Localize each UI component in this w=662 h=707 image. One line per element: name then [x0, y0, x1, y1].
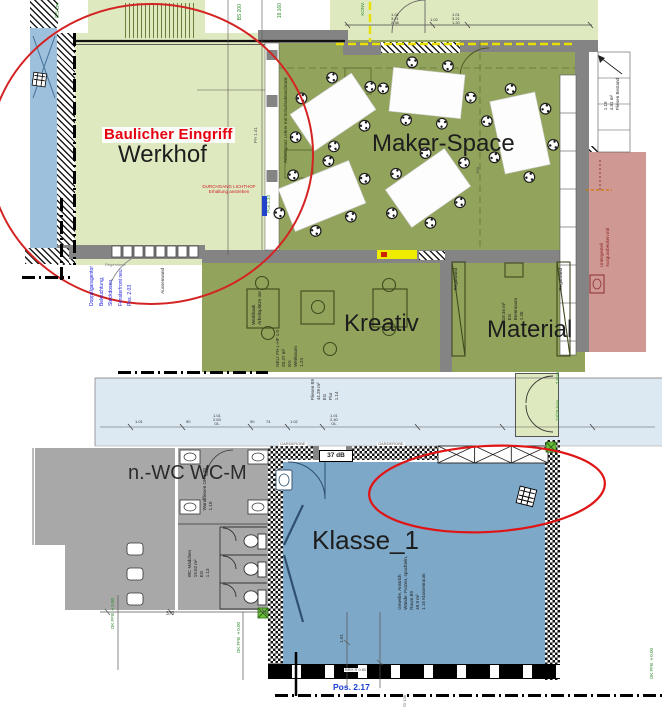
top-dims-b: 1.02 [430, 18, 438, 22]
wc-info2: Wandfliesen OK 1.20 1.10 [203, 468, 214, 510]
dim-370: 370 [166, 612, 174, 617]
pink-note: Untergestell Ausgussbecken mit [600, 228, 611, 267]
label-37db: 37 dB [319, 450, 353, 462]
label-garderobe-2: GARDEROBE [377, 442, 405, 446]
axis-line-bottom-left [22, 276, 70, 279]
annotation-durchgang: DURCHGANG LICHTHOF Erhaltung anstreben [198, 185, 260, 194]
note-aussenwand: Aussenwand [161, 268, 166, 294]
wall-maker-top-right [460, 40, 598, 52]
note-regalwand-left: Regalwand [454, 268, 459, 291]
top-dims-c: 1.01 3.21 1.20 [452, 13, 460, 26]
wc-info: WC Mädchen 19.02 m² EG 1.13 [188, 550, 211, 577]
top-dims-a: 1.01 3.21 2.38 [391, 13, 399, 26]
wall-maker-top-left [258, 30, 348, 43]
ramp-hatching [125, 3, 195, 38]
wc-info-0: 1.13 [206, 550, 211, 577]
blue-note-4: Beleuchtung, [100, 266, 106, 306]
wall-mid-hatch [419, 251, 445, 260]
flur-dim-stack2: 1.01 2.40 OL [330, 414, 338, 427]
room-label-material: Material [487, 317, 572, 342]
axis-line-bottom [275, 694, 662, 697]
room-label-klasse1: Klasse_1 [312, 527, 419, 554]
note-konv: KONV. [361, 2, 366, 16]
pink-note-1: Ausgussbecken mit [606, 228, 611, 267]
flur-dim-1: 90 [186, 420, 190, 424]
dim-300: 300 [476, 167, 480, 174]
kreativ-info-0: 1.24 [300, 330, 305, 367]
note-regalwand-right: Regalwand [559, 268, 564, 291]
dim-181: 1.81 [340, 634, 345, 643]
wall-hatch-corner [30, 0, 58, 28]
klasse-info-0: 1.15 Klassenraum [422, 556, 427, 610]
werkbank-note-1: Arbeitsplätze 4er [258, 291, 263, 325]
label-garderobe-1: GARDEROBE [279, 442, 307, 446]
flur-info-0: 1.14 [335, 379, 340, 400]
green-level-note-1: OK FFB ±0.00 [111, 598, 116, 629]
area-pink [584, 152, 646, 352]
blue-note-3: Steckdosen, [109, 266, 115, 306]
note-td136: TD 136 [403, 695, 407, 707]
blue-notes: Doppelgaragentor Beleuchtung, Steckdosen… [90, 266, 134, 306]
flur-info: Fliesen B9 44.28 m² EG Flur 1.14 [311, 379, 340, 400]
corridor-floor: Fliesen Bestand [616, 78, 621, 110]
note-pos233: Pos 2.33 [267, 195, 272, 213]
wall-klasse-right [545, 440, 560, 680]
green-level-note-2: OK FFB ±0.00 [237, 622, 242, 653]
area-green-room-br [515, 373, 559, 437]
note-pos217: Pos. 2.17 [333, 683, 370, 692]
flur-dim-stack1: 1.01 2.63 OL [213, 414, 221, 427]
note-brh: BRH R 0.80 [344, 668, 367, 672]
wall-maker-step [343, 42, 381, 55]
blue-note-5: Doppelgaragentor [90, 266, 96, 306]
axis-line-flur-top [118, 371, 268, 374]
blue-note-2: Fensterfront neu [119, 266, 125, 306]
kreativ-info: NEU: FH L-HF 1.0 83.37 m² EG Werkraum 1.… [276, 330, 305, 367]
blue-note-1: Pos. 2.03 [128, 266, 134, 306]
corridor-info: 1.19 4.81 m² Fliesen Bestand [604, 78, 621, 110]
werkbank-note: Werkbank Arbeitsplätze 4er [252, 291, 263, 325]
klasse-info: Gewebe, Anstrich Wände: Putzen, spachtel… [398, 556, 427, 610]
wall-corridor-left [575, 52, 589, 352]
wall-kreativ-material [440, 262, 452, 372]
room-label-wc-left: n.-WC [128, 463, 185, 484]
klasse-info-1: 49.9 m² [416, 556, 421, 610]
flur-info-1: Flur [329, 379, 334, 400]
room-label-kreativ: Kreativ [344, 311, 419, 336]
flur-dim-6: 74 [266, 420, 270, 424]
axis-line-left-lower [60, 198, 63, 282]
area-wc-left-lower [65, 545, 175, 610]
wall-klasse-left [268, 446, 283, 678]
floorplan-canvas: Baulicher Eingriff Werkhof Maker-Space K… [0, 0, 662, 707]
wall-maker-top-hatch [381, 42, 460, 53]
area-pale-top-strip [330, 0, 598, 45]
material-info: 18.46 m² EG Brennraum 1.26 [502, 298, 525, 320]
green-level-note-3: OK FFB ±0.00 [650, 648, 655, 679]
note-teacher-desk: Arbeitsplatz Lehrer mit Schubladenschran… [284, 48, 289, 163]
dim-ph141: PH 1.41 [254, 127, 259, 143]
room-label-maker-space: Maker-Space [372, 131, 515, 156]
dim-ramp: 8.5 cm [56, 3, 61, 18]
flur-dim-7: 1.02 [290, 420, 298, 424]
room-label-wc-m: WC-M [190, 463, 247, 484]
wall-klasse-bottom [268, 664, 560, 679]
window-strip-blue [30, 28, 57, 260]
x-brace-cabinets [438, 446, 548, 463]
durchgang-line2: Erhaltung anstreben [198, 190, 260, 195]
area-flur [95, 378, 662, 446]
flur-dim-4: OL [213, 422, 221, 426]
flur-dim-0: 1.01 [135, 420, 143, 424]
room-label-werkhof: Werkhof [118, 142, 207, 167]
wall-klasse-top-b [352, 446, 438, 460]
dim-bs200: BS 200 [238, 4, 243, 20]
kreativ-info-1: Werkraum [294, 330, 299, 367]
axis-line-left [73, 33, 76, 265]
top-dims-c2: 1.20 [452, 21, 460, 25]
wc-info2-0: 1.10 [209, 468, 214, 510]
yellow-highlight-wall [377, 250, 417, 259]
flur-dim-5: 90 [250, 420, 254, 424]
top-dims-a2: 2.38 [391, 21, 399, 25]
flur-dim-10: OL [330, 422, 338, 426]
material-info-0: 1.26 [520, 298, 525, 320]
green-dim-a: 7.5cm [556, 372, 561, 384]
wall-werkhof-bottom [57, 245, 205, 259]
green-dim-b: 24/29.5cm [556, 400, 561, 421]
dim-18160: 18.160 [278, 3, 283, 18]
